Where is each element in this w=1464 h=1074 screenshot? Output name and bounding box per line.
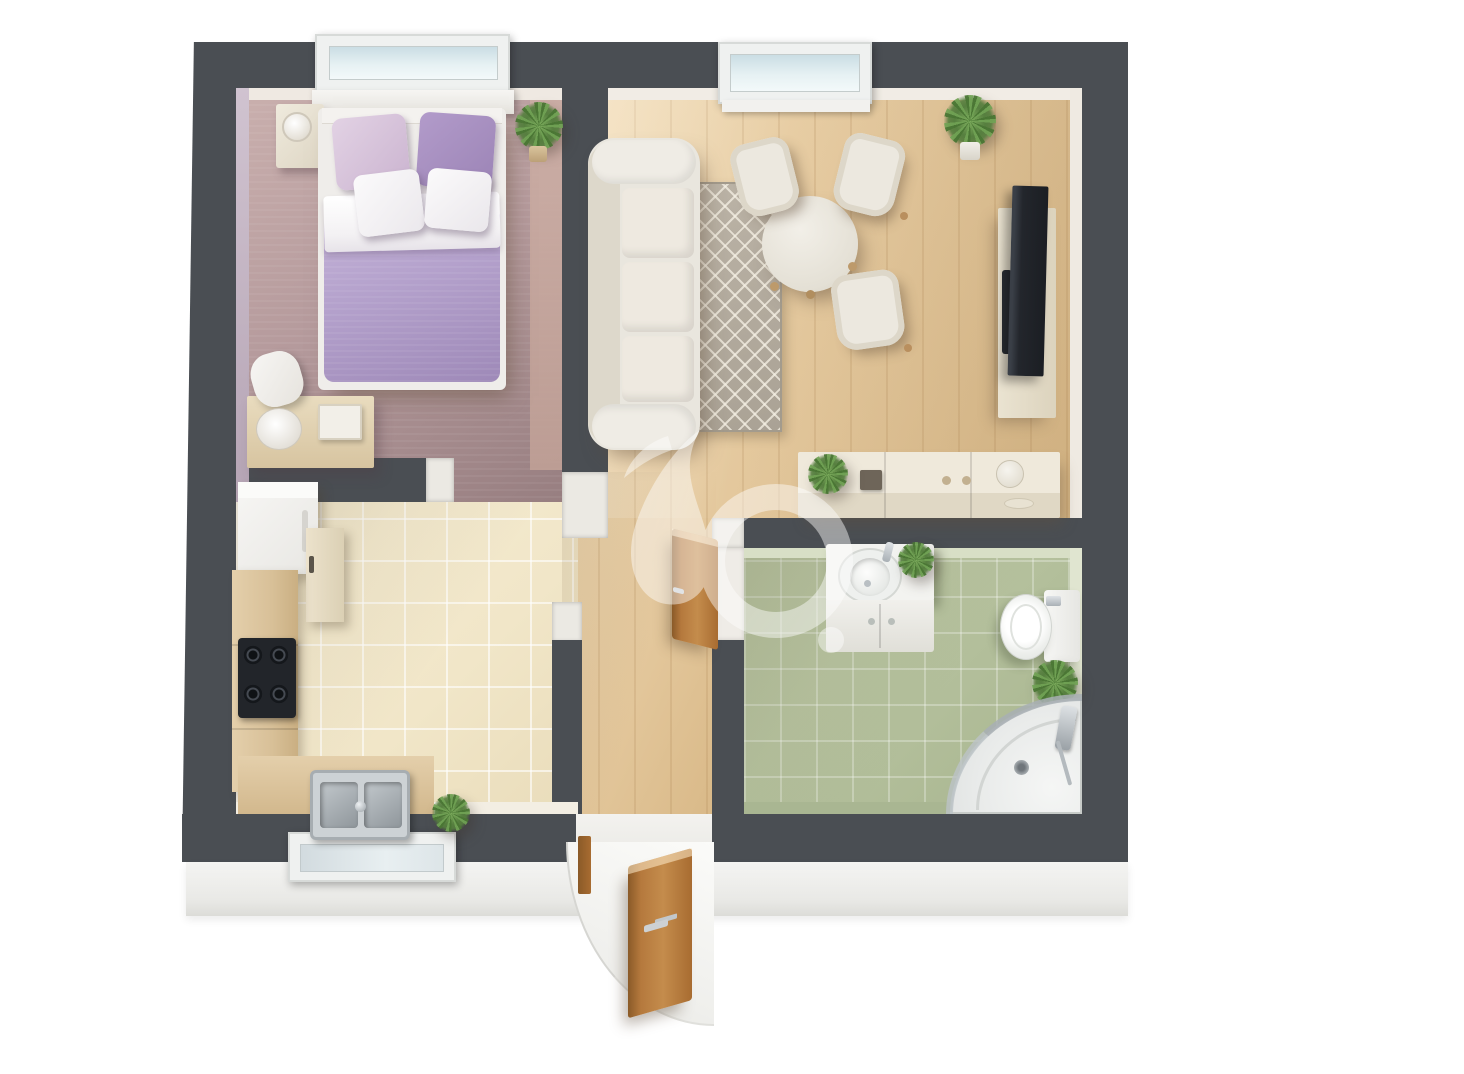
watermark-dot (818, 627, 844, 653)
floor-plan-render (0, 0, 1464, 1074)
watermark-ring (712, 497, 840, 625)
watermark-logo (0, 0, 1464, 1074)
